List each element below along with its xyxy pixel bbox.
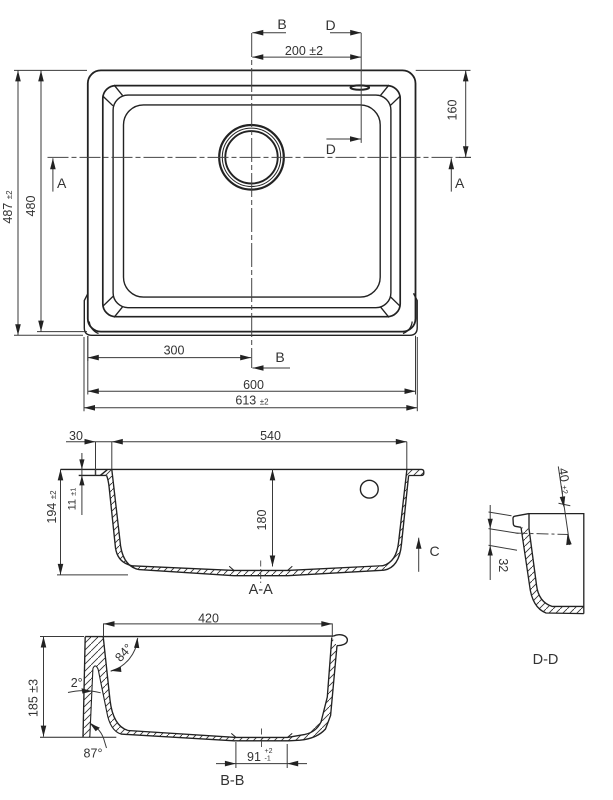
svg-text:420: 420 <box>198 612 219 626</box>
svg-text:D: D <box>326 141 336 157</box>
svg-text:11 ±1: 11 ±1 <box>67 488 79 511</box>
svg-text:87°: 87° <box>84 747 103 761</box>
svg-text:480: 480 <box>24 196 38 217</box>
svg-text:185 ±3: 185 ±3 <box>27 679 41 717</box>
svg-text:540: 540 <box>260 429 281 443</box>
svg-text:A-A: A-A <box>249 582 274 598</box>
svg-text:180: 180 <box>255 510 269 531</box>
svg-text:C: C <box>430 543 440 559</box>
svg-text:D: D <box>325 17 335 33</box>
svg-text:200 ±2: 200 ±2 <box>285 44 323 58</box>
svg-text:300: 300 <box>164 344 185 358</box>
svg-text:B: B <box>275 349 284 365</box>
svg-text:+2: +2 <box>265 748 273 755</box>
svg-text:30: 30 <box>69 429 83 443</box>
svg-text:600: 600 <box>243 378 264 392</box>
svg-text:A: A <box>57 175 67 191</box>
svg-text:2°: 2° <box>71 676 83 690</box>
svg-text:160: 160 <box>446 100 460 121</box>
svg-text:32: 32 <box>496 558 510 572</box>
svg-text:-1: -1 <box>265 756 271 763</box>
svg-text:B-B: B-B <box>220 773 244 789</box>
svg-text:D-D: D-D <box>533 652 559 668</box>
svg-text:B: B <box>277 16 286 32</box>
svg-text:91: 91 <box>247 750 261 764</box>
svg-text:A: A <box>455 175 465 191</box>
